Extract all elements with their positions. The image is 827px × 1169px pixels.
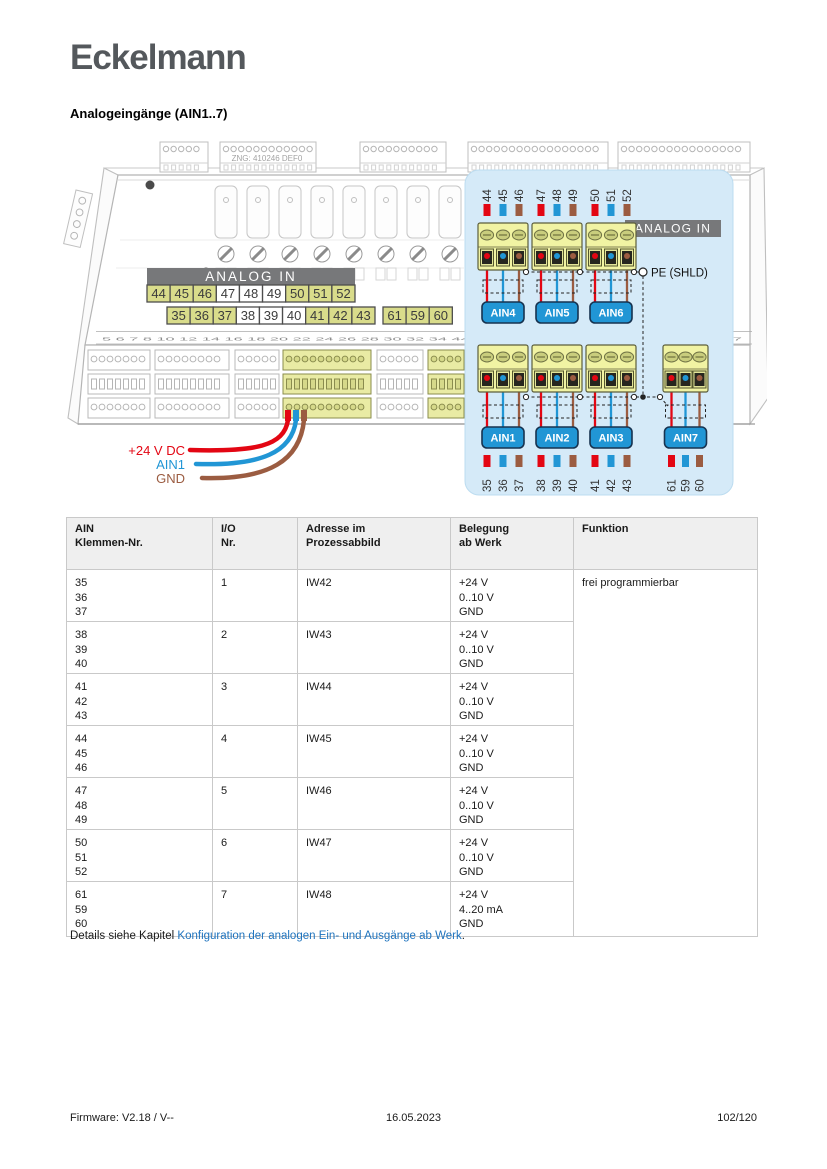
rotated-terminal-number: 36 [498, 479, 510, 492]
wire-dot [500, 375, 506, 381]
wire-color-swatch [570, 455, 577, 467]
wire-dot [608, 375, 614, 381]
shield-node [657, 394, 662, 399]
connector-socket [116, 379, 121, 389]
terminal-number: 40 [287, 308, 301, 323]
column-header: Belegungab Werk [451, 518, 574, 570]
connector-screw-icon [262, 356, 268, 362]
cell-adresse: IW42 [298, 570, 451, 622]
terminal-number: 38 [241, 308, 255, 323]
connector-screw-icon [254, 404, 260, 410]
connector-screw-icon [396, 404, 402, 410]
connector-screw-icon [302, 356, 308, 362]
terminal-number: 50 [290, 286, 304, 301]
cell-adresse: IW48 [298, 882, 451, 937]
cell-adresse: IW47 [298, 830, 451, 882]
cell-io: 4 [213, 726, 298, 778]
rotated-terminal-number: 61 [667, 479, 679, 492]
wire-label-ain1: AIN1 [156, 457, 185, 472]
cell-klemmen: 353637 [67, 570, 213, 622]
cell-io: 2 [213, 622, 298, 674]
cell-io: 5 [213, 778, 298, 830]
connector-screw-icon [198, 404, 204, 410]
column-header: Adresse imProzessabbild [298, 518, 451, 570]
wire-dot [484, 375, 490, 381]
cell-belegung: +24 V0..10 VGND [451, 622, 574, 674]
connector-screw-icon [294, 356, 300, 362]
terminal-number: 39 [264, 308, 278, 323]
wiring-diagram: ZNG: 410246 DEF0 ANALOG IN 4445464748495… [60, 128, 767, 505]
connector-screw-icon [190, 356, 196, 362]
connector-screw-icon [206, 404, 212, 410]
relay-sketch [439, 186, 461, 238]
shield-node [631, 269, 636, 274]
terminal-number: 43 [356, 308, 370, 323]
connector-screw-icon [404, 404, 410, 410]
cell-adresse: IW43 [298, 622, 451, 674]
terminal-number: 52 [336, 286, 350, 301]
connector-socket [167, 379, 172, 389]
cell-klemmen: 474849 [67, 778, 213, 830]
connector-screw-icon [286, 356, 292, 362]
shield-node [577, 394, 582, 399]
connector-socket [124, 379, 129, 389]
connector-screw-icon [91, 404, 97, 410]
table-header: AINKlemmen-Nr.I/ONr.Adresse imProzessabb… [67, 518, 758, 570]
connector-screw-icon [439, 404, 445, 410]
cell-belegung: +24 V0..10 VGND [451, 726, 574, 778]
wire-color-swatch [554, 455, 561, 467]
rotated-terminal-number: 44 [482, 189, 494, 202]
shield-node [631, 394, 636, 399]
connector-screw-icon [115, 356, 121, 362]
wire-dot [516, 253, 522, 259]
cell-adresse: IW45 [298, 726, 451, 778]
connector-socket [271, 379, 276, 389]
connector-screw-icon [350, 404, 356, 410]
wire-color-swatch [696, 455, 703, 467]
terminal-number: 49 [267, 286, 281, 301]
cell-io: 3 [213, 674, 298, 726]
connector-screw-icon [174, 404, 180, 410]
connector-screw-icon [182, 404, 188, 410]
ain-box-label: AIN3 [598, 433, 623, 445]
connector-screw-icon [380, 404, 386, 410]
connector-screw-icon [198, 356, 204, 362]
rotated-terminal-number: 37 [514, 479, 526, 492]
footer-date: 16.05.2023 [0, 1112, 827, 1124]
ain-table: AINKlemmen-Nr.I/ONr.Adresse imProzessabb… [66, 517, 758, 937]
cell-klemmen: 383940 [67, 622, 213, 674]
terminal-number: 59 [410, 308, 424, 323]
rotated-terminal-number: 40 [568, 479, 580, 492]
rotated-terminal-number: 51 [606, 189, 618, 202]
zng-label: ZNG: 410246 DEF0 [232, 154, 303, 163]
wire-color-swatch [484, 204, 491, 216]
connector-screw-icon [206, 356, 212, 362]
cell-io: 7 [213, 882, 298, 937]
terminal-number: 41 [310, 308, 324, 323]
connector-socket [311, 379, 316, 389]
connector-screw-icon [214, 404, 220, 410]
connector-socket [303, 379, 308, 389]
column-header: AINKlemmen-Nr. [67, 518, 213, 570]
terminal-number: 51 [313, 286, 327, 301]
rotated-terminal-number: 47 [536, 189, 548, 202]
connector-screw-icon [99, 356, 105, 362]
cell-belegung: +24 V0..10 VGND [451, 674, 574, 726]
housing-screw-icon [146, 181, 155, 190]
connector-screw-icon [310, 404, 316, 410]
cell-funktion: frei programmierbar [574, 570, 758, 937]
connector-screw-icon [238, 404, 244, 410]
details-prefix: Details siehe Kapitel [70, 930, 177, 942]
connector-screw-icon [246, 404, 252, 410]
connector-socket [319, 379, 324, 389]
page: Eckelmann Analogeingänge (AIN1..7) [0, 0, 827, 1169]
connector-socket [389, 379, 394, 389]
connector-screw-icon [455, 356, 461, 362]
terminal-number: 35 [171, 308, 185, 323]
connector-screw-icon [123, 404, 129, 410]
wire-color-swatch [500, 455, 507, 467]
connector-screw-icon [447, 404, 453, 410]
footer-page-number: 102/120 [717, 1112, 757, 1124]
connector-screw-icon [246, 356, 252, 362]
wire-dot [516, 375, 522, 381]
connector-socket [287, 379, 292, 389]
ain-box-label: AIN7 [673, 433, 698, 445]
wire-dot [624, 253, 630, 259]
terminal-number: 47 [221, 286, 235, 301]
wire-label-24v: +24 V DC [128, 443, 185, 458]
connector-screw-icon [190, 404, 196, 410]
connector-screw-icon [131, 356, 137, 362]
connector-socket [327, 379, 332, 389]
connector-screw-icon [270, 404, 276, 410]
wire-label-gnd: GND [156, 471, 185, 486]
terminal-number: 44 [151, 286, 165, 301]
connector-socket [108, 379, 113, 389]
terminal-number: 48 [244, 286, 258, 301]
wire-color-swatch [500, 204, 507, 216]
connector-screw-icon [447, 356, 453, 362]
connector-socket [381, 379, 386, 389]
wire-color-swatch [538, 455, 545, 467]
connector-screw-icon [342, 404, 348, 410]
cell-belegung: +24 V0..10 VGND [451, 778, 574, 830]
connector-screw-icon [380, 356, 386, 362]
connector-screw-icon [270, 356, 276, 362]
shield-node [523, 394, 528, 399]
connector-screw-icon [396, 356, 402, 362]
relay-sketch [375, 186, 397, 238]
terminal-number: 37 [218, 308, 232, 323]
connector-screw-icon [139, 356, 145, 362]
wire-dot [570, 375, 576, 381]
relay-sketch [407, 186, 429, 238]
connector-screw-icon [318, 356, 324, 362]
connector-screw-icon [158, 356, 164, 362]
connector-socket [191, 379, 196, 389]
rotated-terminal-number: 42 [606, 479, 618, 492]
terminal-number: 36 [194, 308, 208, 323]
connector-screw-icon [326, 404, 332, 410]
connector-screw-icon [412, 404, 418, 410]
connector-screw-icon [107, 404, 113, 410]
connector-screw-icon [334, 404, 340, 410]
ain-box-label: AIN6 [598, 308, 623, 320]
connector-screw-icon [431, 356, 437, 362]
rotated-terminal-number: 48 [552, 189, 564, 202]
wire-color-swatch [668, 455, 675, 467]
connector-screw-icon [350, 356, 356, 362]
details-note: Details siehe Kapitel Konfiguration der … [70, 930, 465, 942]
rotated-terminal-number: 41 [590, 479, 602, 492]
connector-socket [351, 379, 356, 389]
analog-in-panel: ANALOG IN AIN4AIN5AIN6444546474849505152… [465, 170, 733, 495]
device-right-flap [750, 168, 767, 424]
connector-screw-icon [358, 356, 364, 362]
cell-klemmen: 505152 [67, 830, 213, 882]
connector-screw-icon [174, 356, 180, 362]
connector-socket [247, 379, 252, 389]
connector-screw-icon [262, 404, 268, 410]
wire-dot [500, 253, 506, 259]
connector-socket [92, 379, 97, 389]
connector-screw-icon [182, 356, 188, 362]
connector-screw-icon [455, 404, 461, 410]
rotated-terminal-number: 49 [568, 189, 580, 202]
chapter-link[interactable]: Konfiguration der analogen Ein- und Ausg… [177, 930, 461, 942]
cell-io: 1 [213, 570, 298, 622]
rotated-terminal-number: 46 [514, 189, 526, 202]
rotated-terminal-number: 35 [482, 479, 494, 492]
ain-box-label: AIN1 [490, 433, 515, 445]
diagram-svg: ZNG: 410246 DEF0 ANALOG IN 4445464748495… [60, 128, 767, 505]
connector-socket [175, 379, 180, 389]
connector-screw-icon [166, 356, 172, 362]
connector-screw-icon [286, 404, 292, 410]
connector-socket [199, 379, 204, 389]
connector-socket [239, 379, 244, 389]
wire-color-swatch [538, 204, 545, 216]
connector-socket [405, 379, 410, 389]
rotated-terminal-number: 52 [622, 189, 634, 202]
wire-color-swatch [554, 204, 561, 216]
relay-sketch [343, 186, 365, 238]
terminal-number: 45 [174, 286, 188, 301]
wire-dot [624, 375, 630, 381]
terminal-number: 42 [333, 308, 347, 323]
connector-socket [397, 379, 402, 389]
relay-sketch [311, 186, 333, 238]
column-header: I/ONr. [213, 518, 298, 570]
wire-color-swatch [484, 455, 491, 467]
wire-dot [697, 375, 703, 381]
connector-socket [432, 379, 437, 389]
connector-screw-icon [99, 404, 105, 410]
ain-box-label: AIN2 [544, 433, 569, 445]
connector-screw-icon [302, 404, 308, 410]
connector-screw-icon [107, 356, 113, 362]
connector-socket [100, 379, 105, 389]
connector-socket [207, 379, 212, 389]
wire-color-swatch [608, 455, 615, 467]
connector-screw-icon [166, 404, 172, 410]
wire-dot [669, 375, 675, 381]
connector-screw-icon [214, 356, 220, 362]
connector-socket [295, 379, 300, 389]
table-row: 3536371IW42+24 V0..10 VGNDfrei programmi… [67, 570, 758, 622]
side-connector [64, 190, 93, 247]
connector-screw-icon [388, 404, 394, 410]
connector-screw-icon [388, 356, 394, 362]
connector-socket [448, 379, 453, 389]
connector-socket [343, 379, 348, 389]
cell-klemmen: 414243 [67, 674, 213, 726]
connector-socket [456, 379, 461, 389]
wire-color-swatch [570, 204, 577, 216]
connector-socket [359, 379, 364, 389]
wire-color-swatch [608, 204, 615, 216]
connector-screw-icon [158, 404, 164, 410]
terminal-number: 60 [434, 308, 448, 323]
relay-sketch [215, 186, 237, 238]
wire-color-swatch [624, 204, 631, 216]
wire-dot [554, 375, 560, 381]
rotated-terminal-number: 60 [695, 479, 707, 492]
terminal-number: 46 [198, 286, 212, 301]
pe-label: PE (SHLD) [651, 268, 708, 280]
connector-socket [140, 379, 145, 389]
wire-color-swatch [592, 204, 599, 216]
relay-sketch [247, 186, 269, 238]
panel-analog-in-label: ANALOG IN [635, 222, 711, 236]
connector-screw-icon [431, 404, 437, 410]
page-title: Analogeingänge (AIN1..7) [70, 106, 227, 121]
wire-dot [538, 253, 544, 259]
logo: Eckelmann [70, 40, 246, 75]
table-header-row: AINKlemmen-Nr.I/ONr.Adresse imProzessabb… [67, 518, 758, 570]
wire-color-swatch [592, 455, 599, 467]
rotated-terminal-number: 43 [622, 479, 634, 492]
connector-socket [440, 379, 445, 389]
wire-dot [570, 253, 576, 259]
cell-belegung: +24 V0..10 VGND [451, 570, 574, 622]
wire-color-swatch [682, 455, 689, 467]
connector-screw-icon [115, 404, 121, 410]
connector-screw-icon [238, 356, 244, 362]
connector-socket [255, 379, 260, 389]
connector-screw-icon [139, 404, 145, 410]
connector-screw-icon [439, 356, 445, 362]
table-body: 3536371IW42+24 V0..10 VGNDfrei programmi… [67, 570, 758, 937]
wire-color-swatch [516, 204, 523, 216]
cell-adresse: IW46 [298, 778, 451, 830]
connector-screw-icon [412, 356, 418, 362]
wire-dot [484, 253, 490, 259]
ain-box-label: AIN5 [544, 308, 569, 320]
rotated-terminal-number: 39 [552, 479, 564, 492]
column-header: Funktion [574, 518, 758, 570]
connector-socket [132, 379, 137, 389]
cell-io: 6 [213, 830, 298, 882]
wire-dot [538, 375, 544, 381]
connector-socket [215, 379, 220, 389]
connector-screw-icon [334, 356, 340, 362]
wire-dot [683, 375, 689, 381]
shield-node [523, 269, 528, 274]
cell-adresse: IW44 [298, 674, 451, 726]
connector-screw-icon [326, 356, 332, 362]
wire-dot [592, 253, 598, 259]
connector-screw-icon [318, 404, 324, 410]
rotated-terminal-number: 50 [590, 189, 602, 202]
cell-belegung: +24 V0..10 VGND [451, 830, 574, 882]
connector-screw-icon [342, 356, 348, 362]
wire-color-swatch [624, 455, 631, 467]
connector-screw-icon [358, 404, 364, 410]
connector-socket [263, 379, 268, 389]
connector-socket [159, 379, 164, 389]
connector-screw-icon [254, 356, 260, 362]
device-analog-in-label: ANALOG IN [205, 269, 297, 284]
wire-color-swatch [516, 455, 523, 467]
relay-sketch [279, 186, 301, 238]
wire-dot [592, 375, 598, 381]
rotated-terminal-number: 38 [536, 479, 548, 492]
shield-junction [640, 394, 646, 400]
cell-klemmen: 615960 [67, 882, 213, 937]
connector-screw-icon [91, 356, 97, 362]
shield-node [577, 269, 582, 274]
details-suffix: . [462, 930, 465, 942]
connector-screw-icon [131, 404, 137, 410]
terminal-number: 61 [387, 308, 401, 323]
cell-klemmen: 444546 [67, 726, 213, 778]
pe-node [639, 268, 647, 276]
wire-dot [554, 253, 560, 259]
rotated-terminal-number: 45 [498, 189, 510, 202]
rotated-terminal-number: 59 [681, 479, 693, 492]
cell-belegung: +24 V4..20 mAGND [451, 882, 574, 937]
ain-box-label: AIN4 [490, 308, 516, 320]
connector-screw-icon [404, 356, 410, 362]
connector-socket [413, 379, 418, 389]
connector-screw-icon [123, 356, 129, 362]
wire-ain1 [196, 420, 296, 464]
connector-screw-icon [294, 404, 300, 410]
wire-dot [608, 253, 614, 259]
connector-socket [183, 379, 188, 389]
connector-socket [335, 379, 340, 389]
connector-screw-icon [310, 356, 316, 362]
